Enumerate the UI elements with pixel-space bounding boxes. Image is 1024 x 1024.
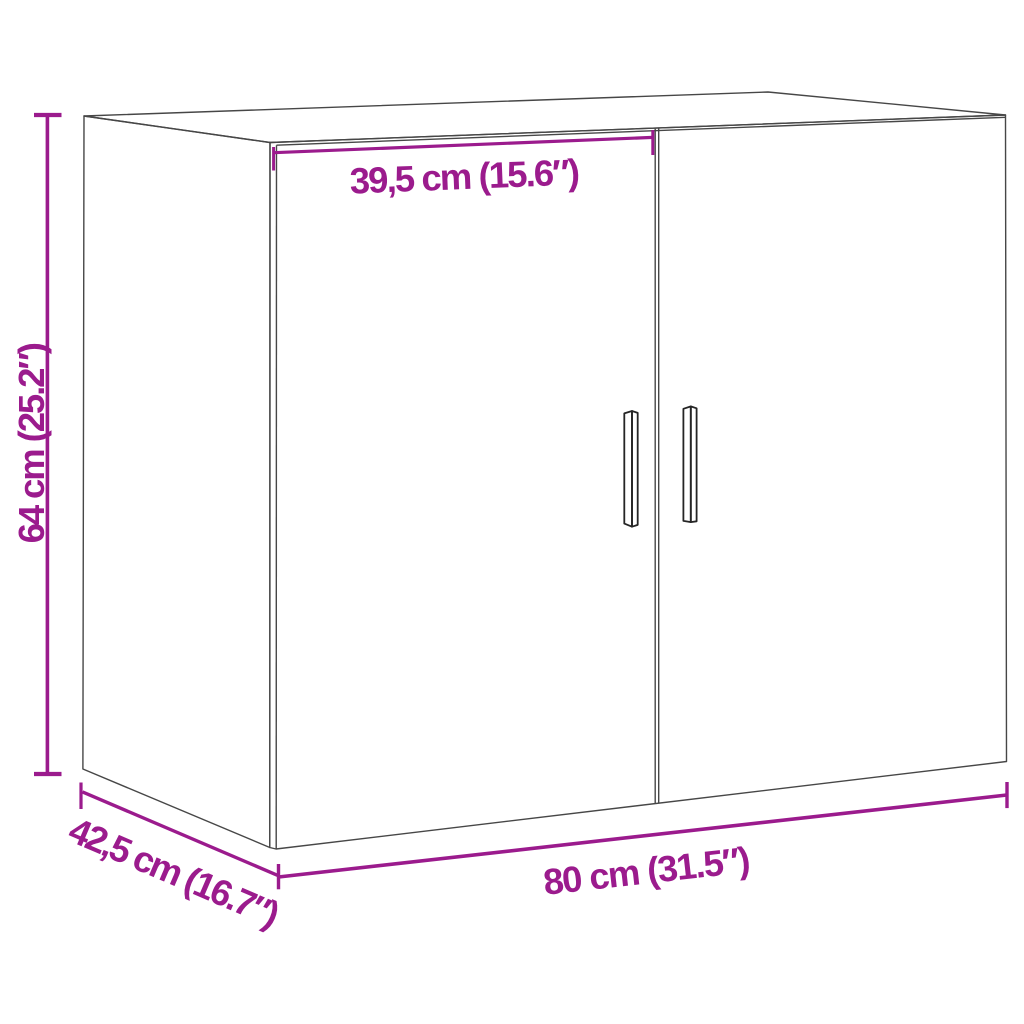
- svg-text:64 cm (25.2″): 64 cm (25.2″): [11, 343, 52, 543]
